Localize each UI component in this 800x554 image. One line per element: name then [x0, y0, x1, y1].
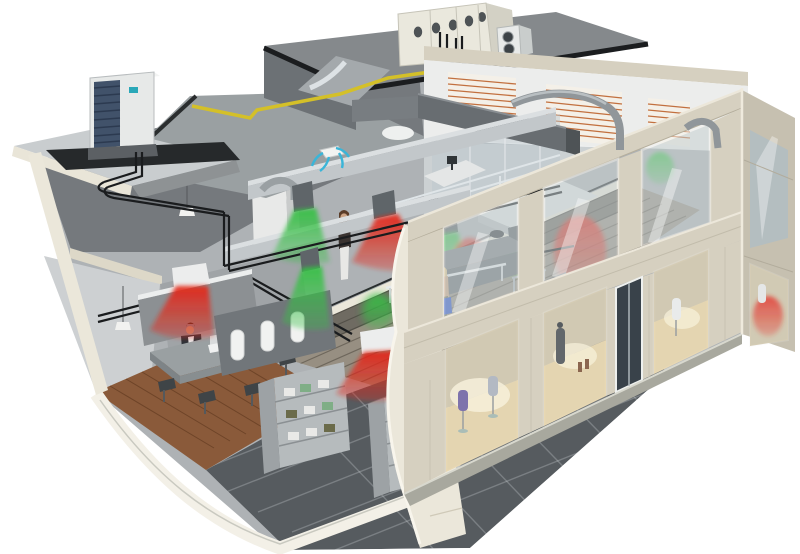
vrv-outdoor-unit — [88, 72, 160, 160]
illustration-canvas — [0, 0, 800, 554]
entrance-door — [616, 277, 642, 392]
monitor — [447, 156, 457, 164]
hvac-building-cutaway-illustration — [0, 0, 800, 554]
east-face — [742, 90, 795, 352]
cool-air-glow — [362, 294, 394, 330]
condenser-grille — [94, 80, 120, 149]
brand-mark — [129, 87, 138, 93]
